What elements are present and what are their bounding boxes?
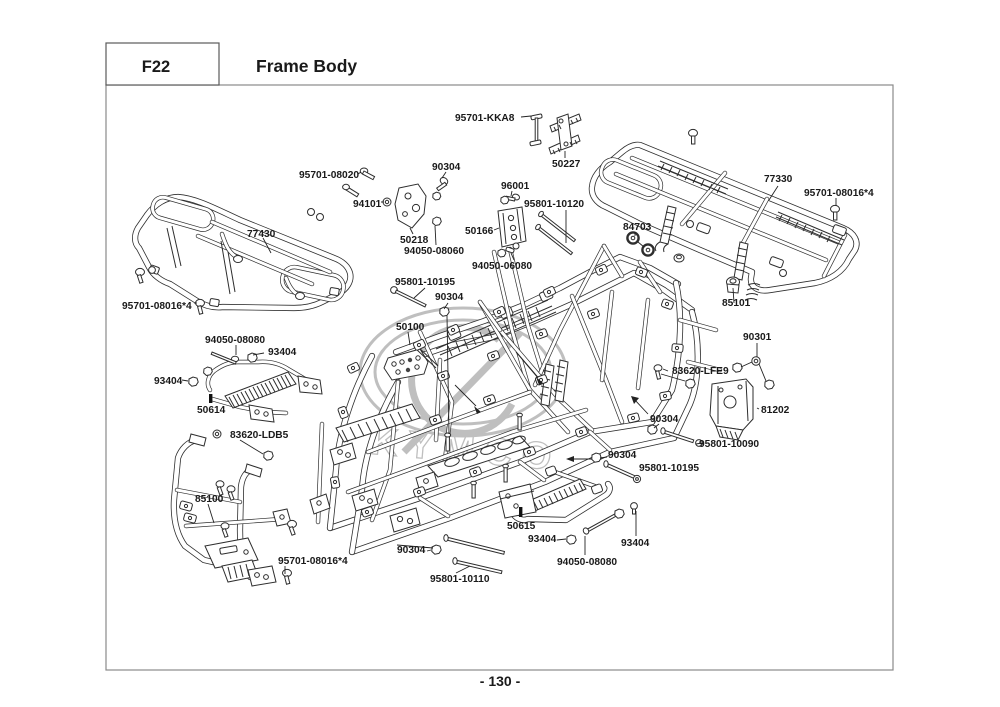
svg-text:50100: 50100 xyxy=(396,322,425,333)
svg-text:85100: 85100 xyxy=(195,494,224,505)
svg-text:93404: 93404 xyxy=(154,376,183,387)
svg-text:94050-08080: 94050-08080 xyxy=(557,557,617,568)
svg-text:50166: 50166 xyxy=(465,226,494,237)
svg-text:95701-08016*4: 95701-08016*4 xyxy=(804,188,874,199)
svg-text:95701-08016*4: 95701-08016*4 xyxy=(278,556,348,567)
svg-text:95801-10195: 95801-10195 xyxy=(395,277,455,288)
svg-text:95701-08016*4: 95701-08016*4 xyxy=(122,301,192,312)
svg-text:Frame Body: Frame Body xyxy=(256,56,357,76)
svg-text:93404: 93404 xyxy=(621,538,650,549)
svg-text:90304: 90304 xyxy=(397,545,426,556)
svg-text:50614: 50614 xyxy=(197,405,226,416)
svg-text:90304: 90304 xyxy=(650,414,679,425)
svg-text:85101: 85101 xyxy=(722,298,751,309)
svg-text:94050-08080: 94050-08080 xyxy=(205,335,265,346)
svg-text:95801-10110: 95801-10110 xyxy=(430,574,490,585)
svg-text:90304: 90304 xyxy=(435,292,464,303)
svg-text:- 130 -: - 130 - xyxy=(480,673,521,689)
svg-text:95701-KKA8: 95701-KKA8 xyxy=(455,113,515,124)
svg-text:50615: 50615 xyxy=(507,521,536,532)
svg-text:95701-08020: 95701-08020 xyxy=(299,170,359,181)
svg-text:90304: 90304 xyxy=(608,450,637,461)
svg-text:77330: 77330 xyxy=(764,174,793,185)
svg-text:96001: 96001 xyxy=(501,181,530,192)
svg-text:83620-LFE9: 83620-LFE9 xyxy=(672,366,729,377)
svg-text:94050-06080: 94050-06080 xyxy=(472,261,532,272)
svg-text:84703: 84703 xyxy=(623,222,652,233)
svg-text:94050-08060: 94050-08060 xyxy=(404,246,464,257)
svg-text:90304: 90304 xyxy=(432,162,461,173)
svg-text:95801-10090: 95801-10090 xyxy=(699,439,759,450)
svg-text:95801-10120: 95801-10120 xyxy=(524,199,584,210)
svg-text:95801-10195: 95801-10195 xyxy=(639,463,699,474)
svg-text:94101: 94101 xyxy=(353,199,382,210)
svg-text:F22: F22 xyxy=(142,58,170,76)
svg-text:83620-LDB5: 83620-LDB5 xyxy=(230,430,289,441)
svg-text:50218: 50218 xyxy=(400,235,429,246)
svg-text:90301: 90301 xyxy=(743,332,772,343)
svg-text:77430: 77430 xyxy=(247,229,276,240)
svg-text:50227: 50227 xyxy=(552,159,581,170)
svg-text:93404: 93404 xyxy=(268,347,297,358)
svg-text:93404: 93404 xyxy=(528,534,557,545)
svg-text:81202: 81202 xyxy=(761,405,790,416)
